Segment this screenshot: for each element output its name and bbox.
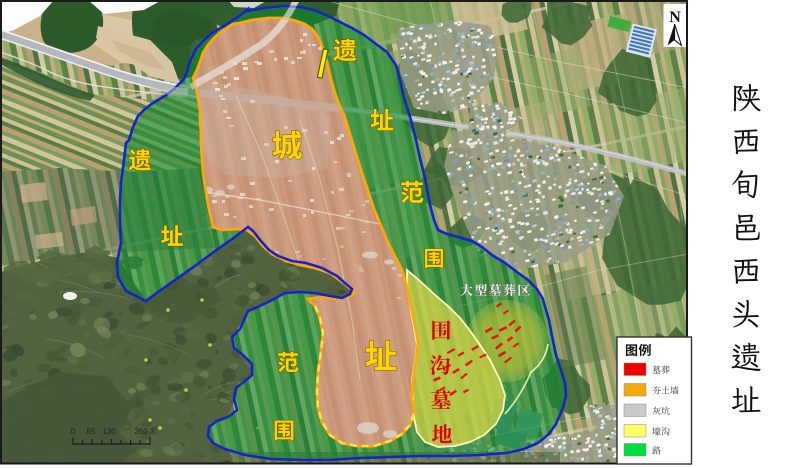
svg-text:260: 260 (134, 427, 148, 436)
svg-text:0: 0 (71, 427, 76, 436)
svg-text:65: 65 (87, 427, 96, 436)
svg-text:130: 130 (102, 427, 116, 436)
svg-text:N: N (669, 9, 681, 26)
